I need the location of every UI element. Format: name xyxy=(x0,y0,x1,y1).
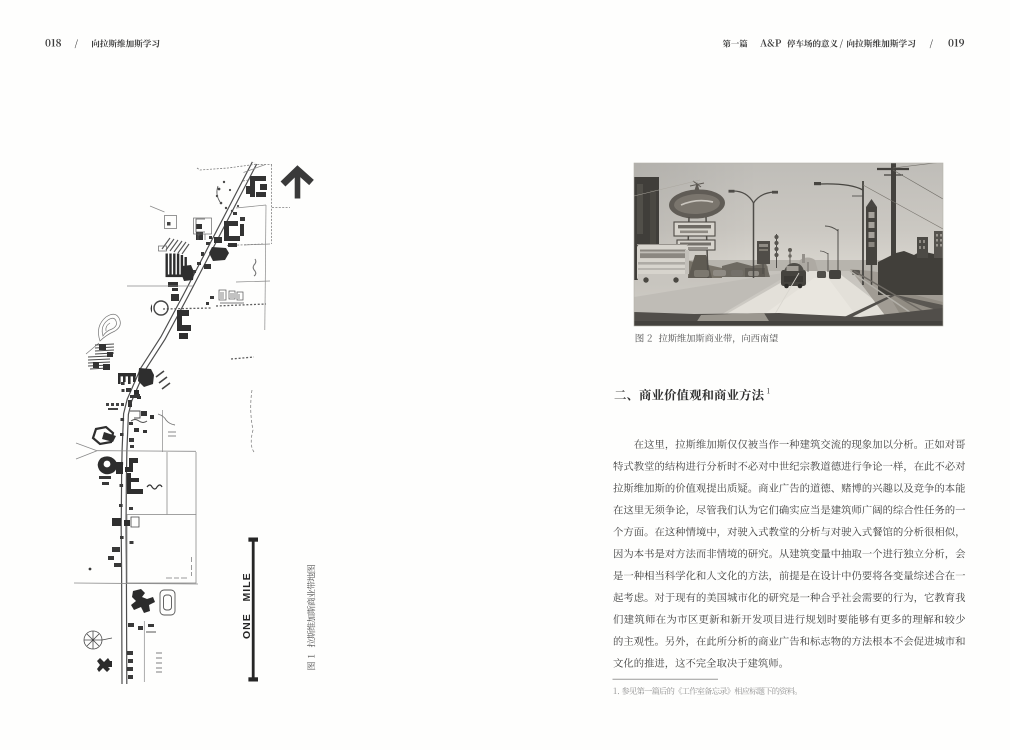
svg-text:ONE MILE: ONE MILE xyxy=(241,572,253,639)
